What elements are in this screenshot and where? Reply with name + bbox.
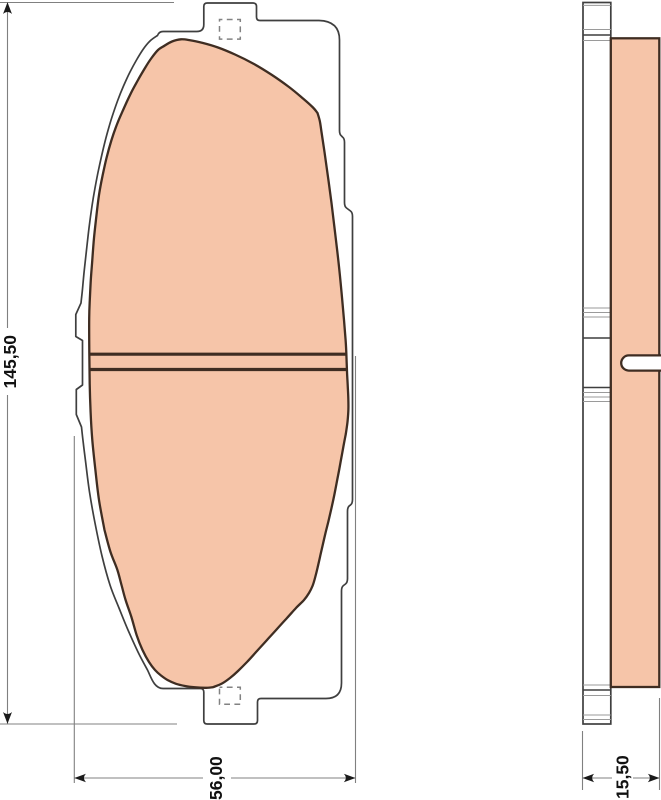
svg-text:145,50: 145,50 (0, 335, 20, 389)
svg-text:15,50: 15,50 (613, 755, 633, 799)
svg-text:56,00: 56,00 (206, 756, 226, 800)
